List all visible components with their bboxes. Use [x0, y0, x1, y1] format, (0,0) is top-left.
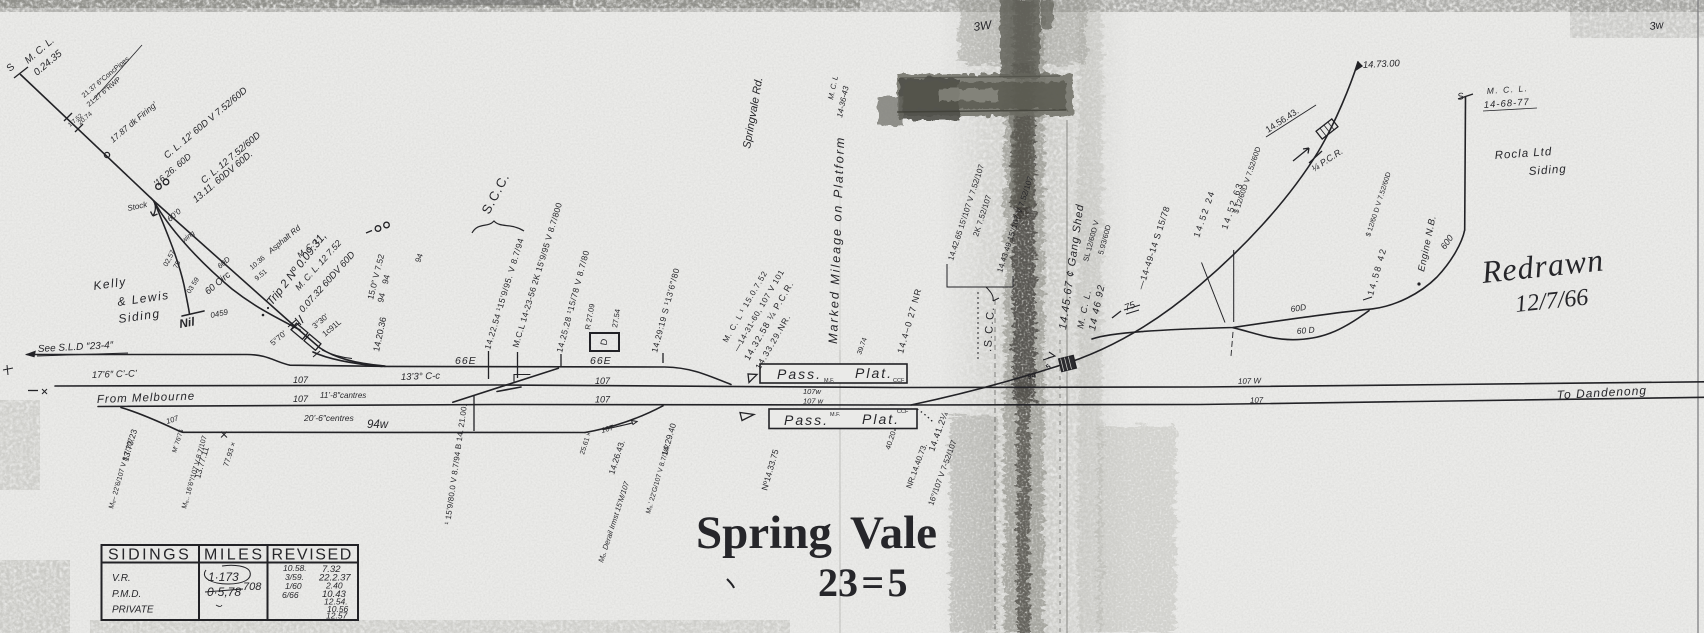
svg-text:V.R.: V.R. — [112, 573, 131, 584]
svg-text:14.73.00: 14.73.00 — [1363, 58, 1401, 71]
svg-text:Plat.: Plat. — [855, 365, 893, 381]
svg-text:107 W: 107 W — [1238, 376, 1263, 386]
svg-text:60 D: 60 D — [1296, 324, 1315, 336]
svg-text:107 w: 107 w — [803, 397, 824, 406]
svg-text:66E: 66E — [455, 355, 477, 367]
svg-text:Spring: Spring — [696, 507, 832, 559]
svg-text:107w: 107w — [803, 387, 822, 396]
svg-text:Vale: Vale — [850, 507, 937, 559]
svg-text:CCF: CCF — [893, 378, 905, 384]
svg-text:107: 107 — [293, 394, 309, 404]
svg-text:107: 107 — [595, 395, 611, 405]
svg-text:Pass.: Pass. — [777, 366, 822, 382]
svg-text:0·5,78: 0·5,78 — [207, 585, 241, 599]
svg-text:S.: S. — [1457, 91, 1468, 103]
svg-text:M.F.: M.F. — [824, 378, 835, 384]
svg-text:107: 107 — [595, 376, 611, 386]
svg-text:6/66: 6/66 — [282, 590, 299, 600]
svg-text:708: 708 — [243, 581, 262, 593]
svg-text:94w: 94w — [367, 419, 389, 431]
svg-text:P.M.D.: P.M.D. — [112, 589, 141, 600]
svg-text:PRIVATE: PRIVATE — [112, 605, 154, 616]
svg-text:20’-6″centres: 20’-6″centres — [303, 413, 355, 423]
svg-text:13’3° C-c: 13’3° C-c — [401, 371, 441, 383]
svg-text:Pass.: Pass. — [784, 412, 829, 428]
svg-text:Plat.: Plat. — [862, 411, 900, 427]
svg-text:3w: 3w — [1649, 19, 1666, 33]
svg-text:CCF: CCF — [897, 409, 909, 415]
svg-text:12.57: 12.57 — [326, 611, 348, 621]
svg-text:M.F.: M.F. — [830, 412, 841, 418]
svg-text:Nil: Nil — [178, 314, 196, 331]
svg-text:11’-8″cantres: 11’-8″cantres — [320, 391, 366, 400]
svg-text:REVISED: REVISED — [272, 547, 353, 564]
svg-text:107: 107 — [1250, 396, 1264, 405]
svg-text:SIDINGS: SIDINGS — [108, 547, 191, 564]
svg-text:17’6″ C’-C’: 17’6″ C’-C’ — [92, 368, 138, 381]
svg-text:107: 107 — [293, 375, 309, 385]
svg-text:23 = 5: 23 = 5 — [818, 560, 907, 605]
svg-text:MILES: MILES — [204, 547, 265, 564]
svg-text:66E: 66E — [590, 355, 612, 367]
